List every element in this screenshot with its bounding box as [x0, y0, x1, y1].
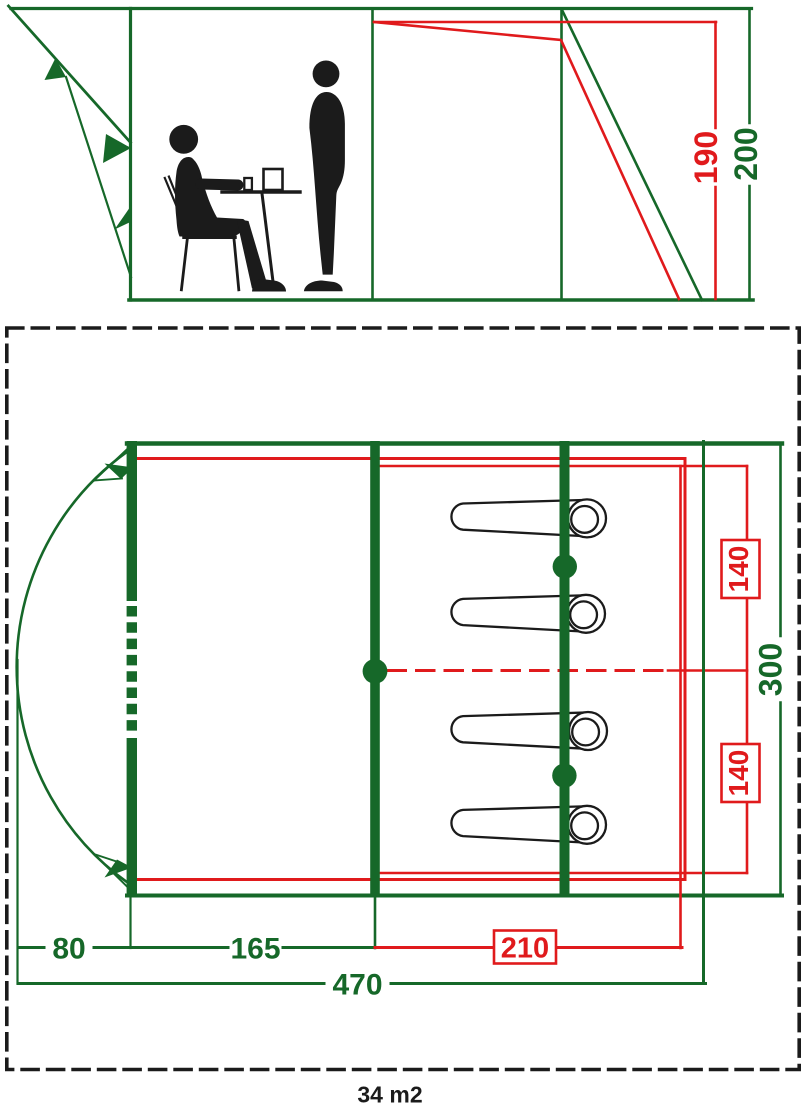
svg-text:140: 140 [723, 546, 754, 593]
svg-text:190: 190 [688, 131, 724, 184]
svg-text:300: 300 [753, 643, 789, 696]
svg-text:165: 165 [230, 933, 280, 966]
svg-text:470: 470 [332, 969, 382, 1002]
svg-text:210: 210 [501, 933, 549, 965]
svg-text:80: 80 [52, 933, 85, 966]
svg-text:34 m2: 34 m2 [357, 1082, 422, 1105]
svg-text:200: 200 [728, 127, 764, 180]
svg-text:140: 140 [723, 750, 754, 797]
